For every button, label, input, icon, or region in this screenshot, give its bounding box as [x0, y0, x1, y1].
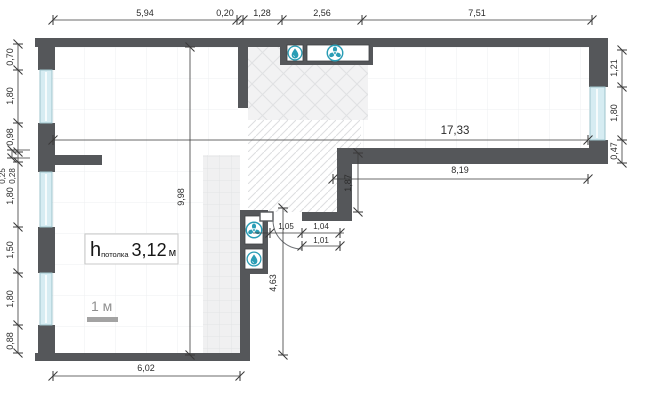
wall-interior-partition-top — [238, 47, 248, 108]
window-left-1 — [40, 70, 52, 123]
ventilation-fan-icon — [327, 45, 342, 60]
wall-bottom — [35, 353, 247, 361]
dim-label: 17,33 — [441, 125, 470, 137]
dim-label: 0,47 — [609, 142, 619, 160]
wall-wing-bottom — [337, 148, 608, 164]
dim-label: 0,20 — [216, 8, 234, 18]
dim-label: 1,21 — [609, 59, 619, 77]
scale-label: 1 м — [91, 298, 112, 314]
dimension-chain-left: 0,70 1,80 0,98 0,25 0,28 1,80 1,50 1,80 … — [0, 40, 30, 358]
dim-label: 1,80 — [609, 104, 619, 122]
dim-label: 8,19 — [451, 165, 469, 175]
dim-label: 1,04 — [313, 222, 329, 231]
water-drop-icon — [288, 46, 302, 60]
dim-label: 0,28 — [8, 168, 17, 184]
dim-label: 1,80 — [5, 87, 15, 105]
door-jamb — [260, 212, 273, 221]
dim-label: 4,63 — [268, 274, 278, 292]
ceiling-height-callout: hпотолка3,12м — [85, 234, 178, 264]
window-left-2 — [40, 172, 52, 227]
ceiling-unit: м — [169, 247, 177, 259]
middle-utility-shaft — [245, 216, 263, 269]
dim-label: 1,05 — [278, 222, 294, 231]
dimension-wing-width: 8,19 — [329, 165, 593, 184]
wall-pier-left-3 — [38, 227, 55, 273]
ventilation-fan-icon — [246, 222, 261, 237]
dim-label: 6,02 — [137, 363, 155, 373]
dim-label: 1,01 — [313, 236, 329, 245]
dim-label: 0,98 — [5, 128, 15, 146]
dimension-bottom-width: 6,02 — [49, 363, 245, 381]
dim-label: 2,56 — [313, 8, 331, 18]
wall-below-shaft — [240, 272, 250, 361]
wall-pier-top-left — [38, 38, 55, 70]
dim-label: 7,51 — [468, 8, 486, 18]
dim-label: 0,88 — [5, 332, 15, 350]
scale-bar — [87, 317, 118, 322]
floor-plan-drawing: 5,94 0,20 1,28 2,56 7,51 0,70 1,80 0,98 … — [0, 0, 649, 400]
dim-label: 5,94 — [136, 8, 154, 18]
ceiling-symbol: h — [90, 239, 101, 261]
tiled-strip-zone — [203, 155, 240, 353]
dimension-chain-top: 5,94 0,20 1,28 2,56 7,51 — [49, 8, 597, 25]
dim-label: 1,50 — [5, 241, 15, 259]
dim-label: 0,70 — [5, 48, 15, 66]
water-drop-icon — [247, 252, 261, 266]
dim-label: 1,87 — [343, 174, 353, 192]
dimension-chain-right: 1,21 1,80 0,47 — [609, 46, 627, 168]
wall-pier-top-right — [589, 38, 608, 87]
window-right — [590, 87, 605, 140]
wall-interior-stub-left — [52, 155, 102, 165]
ceiling-value: 3,12 — [132, 240, 167, 260]
ceiling-subscript: потолка — [101, 250, 129, 259]
dim-label: 1,28 — [253, 8, 271, 18]
dim-label: 0,25 — [0, 168, 7, 184]
window-left-3 — [40, 273, 52, 325]
dim-label: 9,98 — [176, 188, 186, 206]
dim-label: 1,80 — [5, 187, 15, 205]
floor-plan-canvas: 5,94 0,20 1,28 2,56 7,51 0,70 1,80 0,98 … — [0, 0, 649, 400]
dim-label: 1,80 — [5, 290, 15, 308]
top-utility-shaft — [280, 41, 373, 65]
wall-door-pocket — [302, 212, 352, 221]
